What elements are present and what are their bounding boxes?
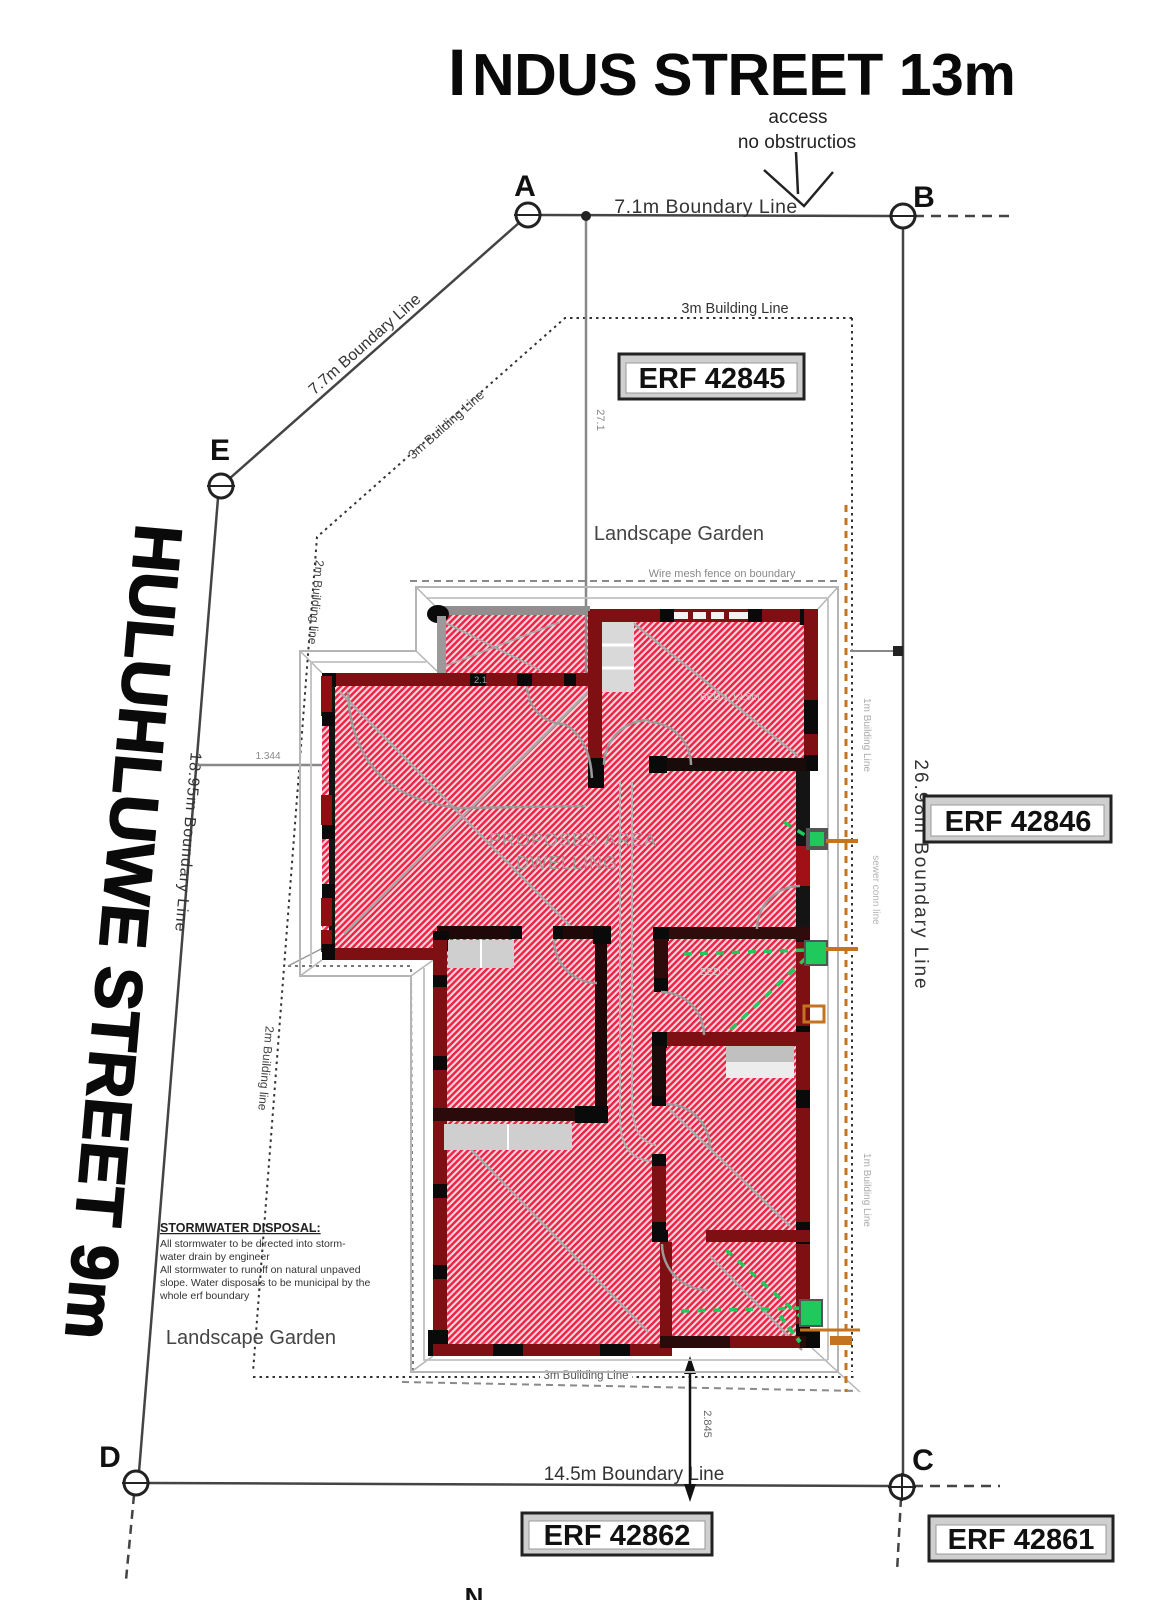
svg-text:2.1: 2.1 <box>474 675 487 686</box>
svg-text:STORMWATER DISPOSAL:: STORMWATER DISPOSAL: <box>160 1221 321 1235</box>
svg-text:7.1m Boundary Line: 7.1m Boundary Line <box>614 196 798 218</box>
svg-text:27.1: 27.1 <box>594 409 606 430</box>
svg-text:18.95m Boundary Line: 18.95m Boundary Line <box>171 751 204 933</box>
svg-text:BED 2: BED 2 <box>700 967 729 978</box>
svg-text:I: I <box>448 35 466 109</box>
svg-text:26.98m Boundary Line: 26.98m Boundary Line <box>910 759 931 990</box>
svg-text:ERF 42862: ERF 42862 <box>544 1520 691 1552</box>
svg-text:14.5m Boundary Line: 14.5m Boundary Line <box>544 1464 725 1485</box>
svg-text:no obstructios: no obstructios <box>738 132 856 153</box>
svg-text:whole erf boundary: whole erf boundary <box>159 1290 250 1302</box>
svg-text:1m Building Line: 1m Building Line <box>861 698 872 772</box>
svg-text:All stormwater to be directed: All stormwater to be directed into storm… <box>160 1238 346 1250</box>
svg-text:2.845: 2.845 <box>701 1410 713 1438</box>
svg-text:N: N <box>465 1582 484 1600</box>
svg-text:2m Building line: 2m Building line <box>255 1026 276 1112</box>
svg-text:ERF 42845: ERF 42845 <box>639 363 786 395</box>
svg-text:NDUS STREET 13m: NDUS STREET 13m <box>472 42 1015 108</box>
svg-text:Wire mesh fence on boundary: Wire mesh fence on boundary <box>649 568 796 580</box>
svg-text:ERF 42861: ERF 42861 <box>948 1524 1095 1556</box>
svg-text:A: A <box>514 170 536 203</box>
svg-text:3m Building Line: 3m Building Line <box>405 387 487 462</box>
svg-text:1m Building Line: 1m Building Line <box>861 1153 872 1227</box>
svg-text:slope. Water disposals to be m: slope. Water disposals to be municipal b… <box>160 1277 370 1289</box>
svg-text:DWELLING: DWELLING <box>516 853 618 873</box>
svg-text:D: D <box>99 1441 121 1474</box>
svg-text:E: E <box>210 434 230 467</box>
svg-text:water drain by engineer: water drain by engineer <box>159 1251 270 1263</box>
svg-text:BED 1 12.5m: BED 1 12.5m <box>700 692 759 703</box>
svg-text:3m Building Line: 3m Building Line <box>681 301 788 317</box>
svg-text:sewer conn line: sewer conn line <box>870 855 881 925</box>
svg-text:Landscape Garden: Landscape Garden <box>594 523 764 545</box>
svg-text:Landscape Garden: Landscape Garden <box>166 1327 336 1349</box>
svg-text:ERF 42846: ERF 42846 <box>945 806 1092 838</box>
svg-text:1.344: 1.344 <box>255 751 280 762</box>
svg-text:access: access <box>768 107 827 128</box>
svg-text:7.7m Boundary Line: 7.7m Boundary Line <box>306 291 425 399</box>
svg-text:B: B <box>913 181 935 214</box>
svg-text:All stormwater to runoff on na: All stormwater to runoff on natural unpa… <box>160 1264 361 1276</box>
svg-text:C: C <box>912 1444 934 1477</box>
svg-text:2m Building line: 2m Building line <box>305 560 326 646</box>
